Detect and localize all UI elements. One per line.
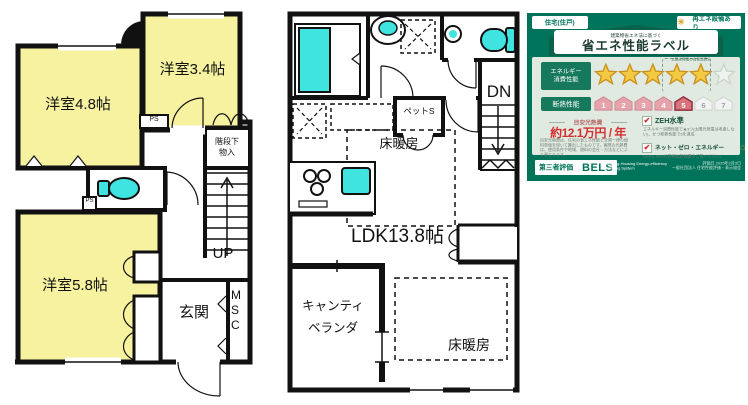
screenshot-root: 洋室4.8帖 洋室3.4帖 洋室5.8帖 PS PS 階段下 物入 UP 玄関 … bbox=[0, 0, 748, 405]
room-34-label: 洋室3.4帖 bbox=[145, 62, 240, 79]
bels-bar: 第三者評価 BELS Building-Housing Energy-effic… bbox=[527, 155, 745, 181]
zeh-checkbox-icon: ✔ bbox=[642, 116, 652, 126]
issuer-name: 一般社団法人 住宅性能評価・表示協会 bbox=[671, 166, 741, 171]
star-icon-2 bbox=[618, 60, 642, 90]
solar-self-note: 太陽光発電の自家消費分 bbox=[671, 57, 703, 62]
room-48-label: 洋室4.8帖 bbox=[18, 97, 138, 114]
nze-label: ネット・ゼロ・エネルギー bbox=[655, 144, 724, 152]
cost-dash-right bbox=[611, 122, 627, 123]
up-label: UP bbox=[203, 246, 243, 263]
house-chip-4: 4 bbox=[654, 95, 673, 112]
stair-storage-label-1: 階段下 bbox=[205, 138, 249, 147]
toilet-icon-1f bbox=[98, 178, 139, 199]
pet-space-label: ペットS bbox=[396, 107, 442, 116]
cantilever-label-1: キャンティ bbox=[292, 300, 374, 314]
bathroom bbox=[290, 14, 368, 98]
dn-label: DN bbox=[479, 83, 519, 102]
law-note: 建築物省エネ法に基づく bbox=[610, 33, 661, 38]
entrance-label: 玄関 bbox=[166, 305, 222, 322]
bathtub-icon bbox=[299, 28, 330, 92]
insulation-row-head: 断熱性能 bbox=[541, 97, 591, 111]
star-icon-6-empty bbox=[712, 60, 736, 90]
nze-checkbox-icon: ✔ bbox=[642, 143, 652, 153]
sun-icon: ☀ bbox=[677, 18, 685, 27]
ps-upper-label: PS bbox=[140, 116, 168, 124]
svg-text:2: 2 bbox=[621, 101, 625, 110]
house-chip-6: 6 bbox=[694, 95, 713, 112]
house-chip-3: 3 bbox=[634, 95, 653, 112]
renewable-chip: ☀ 再エネ設備あり bbox=[677, 16, 741, 29]
cantilever-label-2: ベランダ bbox=[292, 322, 374, 336]
floor-heating-lower-label: 床暖房 bbox=[434, 338, 504, 353]
house-chip-5-achieved: 5 bbox=[674, 95, 693, 112]
evaluation-info: 評価日 2025年2月3日 一般社団法人 住宅性能評価・表示協会 bbox=[671, 161, 741, 170]
label-title: 省エネ性能ラベル bbox=[582, 40, 690, 53]
housing-type-text: 住宅(住戸) bbox=[545, 18, 575, 27]
ldk-label: LDK13.8帖 bbox=[330, 227, 465, 248]
insulation-head-text: 断熱性能 bbox=[552, 99, 579, 108]
washbasin-icon bbox=[379, 21, 397, 35]
energy-head-1: エネルギー bbox=[550, 68, 581, 75]
house-chip-1: 1 bbox=[594, 95, 613, 112]
cost-dash-left bbox=[549, 122, 565, 123]
ps-lower-label: PS bbox=[83, 198, 96, 205]
toilet-room-1f bbox=[83, 168, 198, 210]
floor-heating-upper-label: 床暖房 bbox=[372, 137, 426, 151]
nze-check-row: ✔ ネット・ゼロ・エネルギー ⌂ bbox=[642, 142, 738, 153]
energy-row-head: エネルギー 消費性能 bbox=[541, 62, 591, 90]
sink-icon bbox=[342, 168, 370, 194]
room-58-label: 洋室5.8帖 bbox=[25, 278, 125, 295]
toilet-icon-2f bbox=[481, 29, 507, 51]
star-icon-1 bbox=[594, 60, 618, 90]
solar-bracket bbox=[662, 58, 711, 92]
insulation-scale: 1 2 3 4 5 6 7 bbox=[594, 95, 736, 113]
stove-icon bbox=[311, 183, 323, 195]
house-chip-7: 7 bbox=[714, 95, 733, 112]
bels-prefix: 第三者評価 bbox=[539, 163, 573, 172]
kitchen bbox=[290, 162, 375, 214]
svg-text:7: 7 bbox=[721, 101, 725, 110]
nze-house-icon: ⌂ bbox=[740, 143, 745, 152]
label-title-box: 建築物省エネ法に基づく 省エネ性能ラベル bbox=[554, 30, 718, 54]
house-chip-2: 2 bbox=[614, 95, 633, 112]
energy-label-card: 住宅(住戸) ☀ 再エネ設備あり 建築物省エネ法に基づく 省エネ性能ラベル エネ… bbox=[527, 13, 745, 181]
zeh-note: エネルギー消費性能で★3つ(太陽光発電は考慮しない)、かつ断熱性能で5を達成 bbox=[643, 127, 737, 135]
svg-text:3: 3 bbox=[641, 101, 645, 110]
bels-subtitle: Building-Housing Energy-efficiency Label… bbox=[605, 162, 680, 171]
svg-text:6: 6 bbox=[701, 101, 705, 110]
hand-basin-icon bbox=[449, 30, 457, 38]
shoe-cabinet-label: MSC bbox=[231, 288, 244, 333]
label-panel: エネルギー 消費性能 太陽光発電の自家消費分 断熱性能 1 2 3 4 bbox=[532, 57, 740, 155]
zeh-label: ZEH水準 bbox=[655, 116, 684, 126]
energy-head-2: 消費性能 bbox=[554, 77, 579, 84]
stair-storage-label-2: 物入 bbox=[205, 149, 249, 158]
zeh-check-row: ✔ ZEH水準 bbox=[642, 115, 738, 126]
renewable-text: 再エネ設備あり bbox=[692, 14, 735, 32]
star-rating: 太陽光発電の自家消費分 bbox=[594, 60, 736, 92]
housing-type-chip: 住宅(住戸) bbox=[532, 16, 588, 29]
